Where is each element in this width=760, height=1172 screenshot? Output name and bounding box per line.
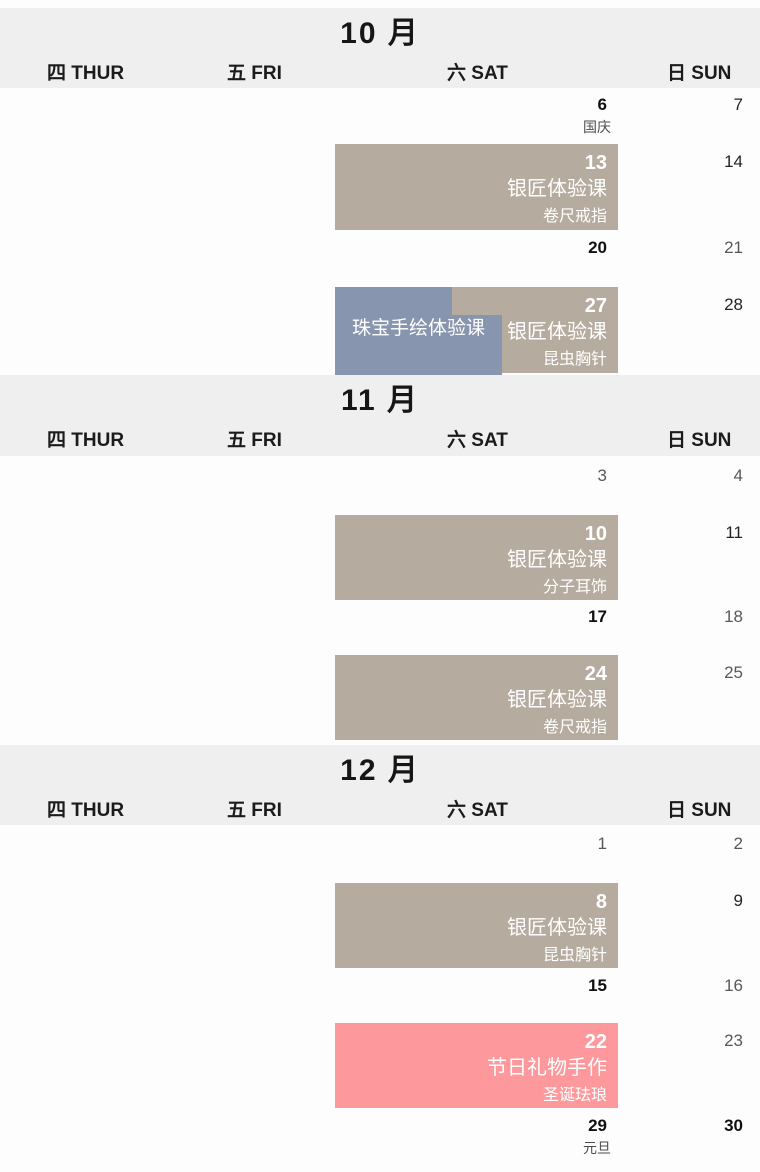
- event-title: 银匠体验课: [335, 548, 607, 572]
- day-number-oct-20: 20: [588, 238, 607, 258]
- month-band-december: 12 月 四 THUR 五 FRI 六 SAT 日 SUN: [0, 745, 760, 825]
- weekday-label-sat: 六 SAT: [447, 63, 508, 85]
- weekday-label-fri: 五 FRI: [227, 430, 282, 452]
- day-number-nov-25: 25: [724, 663, 743, 683]
- event-subtitle: 分子耳饰: [335, 579, 607, 597]
- weekday-label-fri: 五 FRI: [227, 800, 282, 822]
- event-block-nov-24-silversmith: 24 银匠体验课 卷尺戒指: [335, 655, 618, 740]
- day-number-dec-30: 30: [724, 1116, 743, 1136]
- holiday-label-new-year: 元旦: [583, 1140, 611, 1157]
- event-subtitle: 昆虫胸针: [335, 947, 607, 965]
- day-number-oct-28: 28: [724, 295, 743, 315]
- day-number-oct-14: 14: [724, 152, 743, 172]
- day-number-nov-11: 11: [725, 523, 743, 543]
- day-number-dec-23: 23: [724, 1031, 743, 1051]
- day-number-oct-21: 21: [724, 238, 743, 258]
- event-day-number: 10: [335, 523, 607, 546]
- weekday-label-sun: 日 SUN: [667, 800, 731, 822]
- day-number-dec-9: 9: [734, 891, 743, 911]
- day-number-dec-1: 1: [598, 834, 607, 854]
- event-block-dec-8-silversmith: 8 银匠体验课 昆虫胸针: [335, 883, 618, 968]
- weekday-label-thu: 四 THUR: [47, 430, 124, 452]
- holiday-label-national-day: 国庆: [583, 119, 611, 136]
- weekday-label-sun: 日 SUN: [667, 430, 731, 452]
- weekday-label-thu: 四 THUR: [47, 63, 124, 85]
- weekday-label-sat: 六 SAT: [447, 800, 508, 822]
- event-title: 银匠体验课: [335, 916, 607, 940]
- event-block-nov-10-silversmith: 10 银匠体验课 分子耳饰: [335, 515, 618, 600]
- month-title-october: 10 月: [0, 18, 760, 50]
- event-day-number: 27: [452, 295, 607, 318]
- month-title-november: 11 月: [0, 385, 760, 417]
- event-subtitle: 卷尺戒指: [335, 208, 607, 226]
- day-number-nov-4: 4: [734, 466, 743, 486]
- event-day-number: 13: [335, 152, 607, 175]
- event-day-number: 24: [335, 663, 607, 686]
- event-title: 银匠体验课: [335, 177, 607, 201]
- day-number-nov-3: 3: [598, 466, 607, 486]
- weekday-label-fri: 五 FRI: [227, 63, 282, 85]
- day-number-nov-18: 18: [724, 607, 743, 627]
- day-number-oct-6: 6: [598, 95, 607, 115]
- event-title: 银匠体验课: [335, 688, 607, 712]
- event-subtitle: 圣诞珐琅: [335, 1087, 607, 1105]
- event-day-number: 8: [335, 891, 607, 914]
- event-title: 节日礼物手作: [335, 1056, 607, 1080]
- event-block-oct-13-silversmith: 13 银匠体验课 卷尺戒指: [335, 144, 618, 230]
- event-title: 珠宝手绘体验课: [335, 318, 502, 340]
- weekday-label-thu: 四 THUR: [47, 800, 124, 822]
- day-number-nov-17: 17: [588, 607, 607, 627]
- day-number-dec-16: 16: [724, 976, 743, 996]
- month-band-november: 11 月 四 THUR 五 FRI 六 SAT 日 SUN: [0, 375, 760, 456]
- month-title-december: 12 月: [0, 755, 760, 787]
- month-band-october: 10 月 四 THUR 五 FRI 六 SAT 日 SUN: [0, 8, 760, 88]
- weekday-label-sat: 六 SAT: [447, 430, 508, 452]
- day-number-dec-15: 15: [588, 976, 607, 996]
- day-number-oct-7: 7: [734, 95, 743, 115]
- event-subtitle: 卷尺戒指: [335, 719, 607, 737]
- day-number-dec-29: 29: [588, 1116, 607, 1136]
- class-schedule-calendar: 10 月 四 THUR 五 FRI 六 SAT 日 SUN 6 7 国庆 13 …: [0, 0, 760, 1172]
- event-day-number: 22: [335, 1031, 607, 1054]
- weekday-label-sun: 日 SUN: [667, 63, 731, 85]
- day-number-dec-2: 2: [734, 834, 743, 854]
- event-block-dec-22-holiday-gift: 22 节日礼物手作 圣诞珐琅: [335, 1023, 618, 1108]
